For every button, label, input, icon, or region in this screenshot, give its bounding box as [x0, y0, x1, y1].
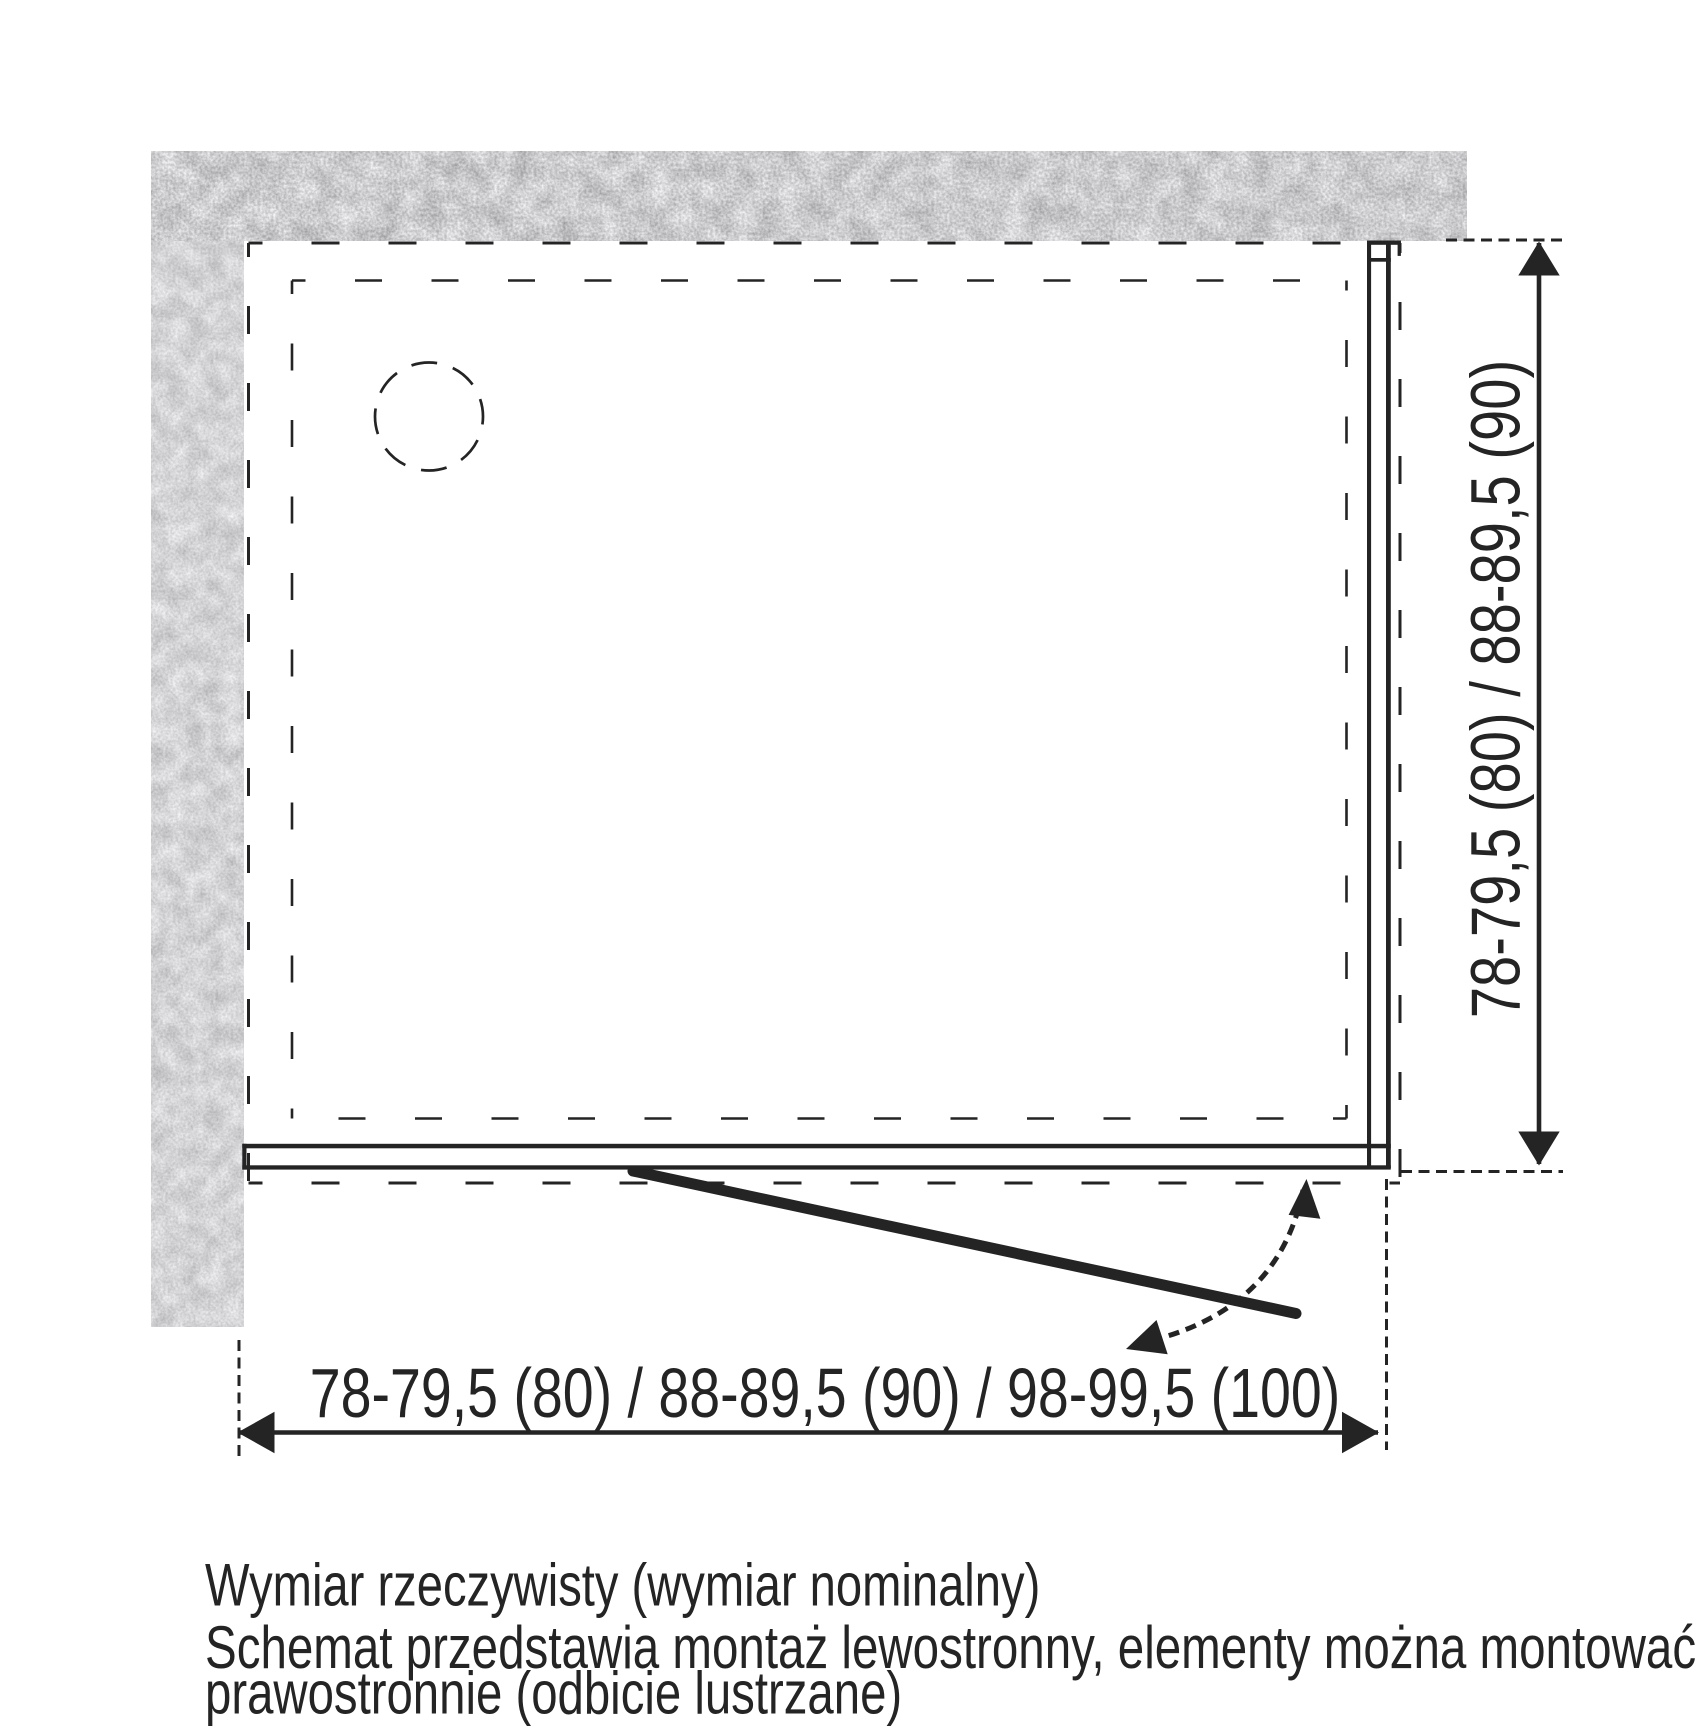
svg-text:Wymiar rzeczywisty (wymiar nom: Wymiar rzeczywisty (wymiar nominalny) — [205, 1552, 1040, 1619]
svg-text:prawostronnie (odbicie lustrza: prawostronnie (odbicie lustrzane) — [205, 1660, 902, 1727]
svg-text:78-79,5 (80) / 88-89,5 (90): 78-79,5 (80) / 88-89,5 (90) — [1458, 360, 1535, 1018]
svg-text:78-79,5 (80) / 88-89,5 (90) /: 78-79,5 (80) / 88-89,5 (90) / 98-99,5 (1… — [310, 1355, 1340, 1433]
